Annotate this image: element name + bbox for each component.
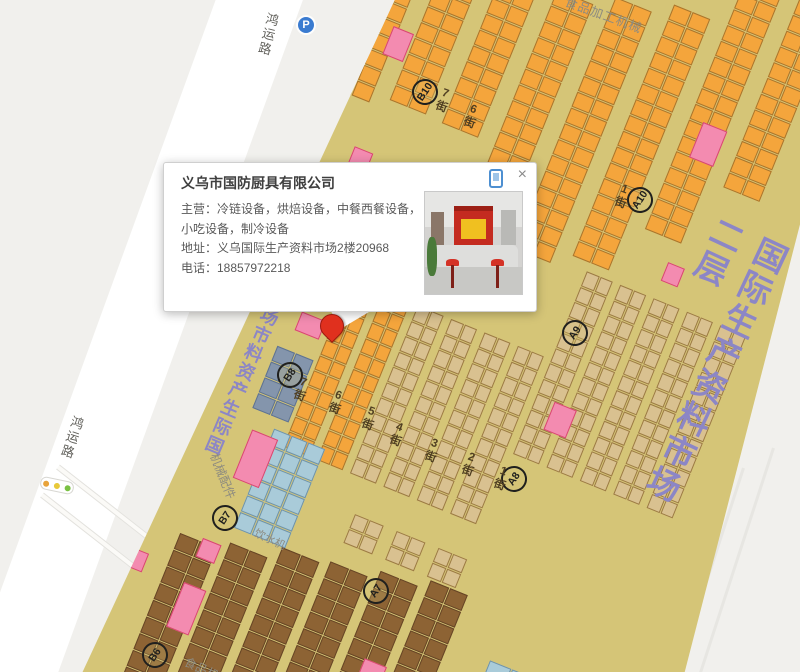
stall-cell (483, 660, 511, 672)
stall-cell (359, 10, 383, 32)
store-photo[interactable] (424, 191, 523, 295)
parking-icon[interactable]: P (298, 17, 314, 33)
popup-address-line: 地址：义乌国际生产资料市场2楼20968 (181, 239, 427, 259)
stall-cell (352, 26, 376, 48)
photo-detail (501, 210, 517, 245)
mobile-phone-icon[interactable] (489, 169, 503, 188)
info-popup: 义乌市国防厨具有限公司 × 主营：冷链设备，烘焙设备，中餐西餐设备，小吃设备，制… (163, 162, 537, 312)
popup-phone-line: 电话：18857972218 (181, 259, 427, 279)
close-icon[interactable]: × (518, 167, 527, 183)
map-canvas[interactable]: { "popup": { "title": "义乌市国防厨具有限公司", "cl… (0, 0, 800, 672)
stall-block (343, 514, 383, 554)
popup-title: 义乌市国防厨具有限公司 (181, 173, 335, 193)
photo-detail (427, 237, 437, 276)
photo-detail (425, 267, 522, 294)
stall-cell (346, 42, 370, 64)
stall-block (385, 531, 425, 571)
photo-detail (496, 265, 499, 287)
stall-block (475, 660, 555, 672)
popup-business-line: 主营：冷链设备，烘焙设备，中餐西餐设备，小吃设备，制冷设备 (181, 200, 427, 239)
popup-body: 主营：冷链设备，烘焙设备，中餐西餐设备，小吃设备，制冷设备 地址：义乌国际生产资… (181, 200, 427, 278)
stall-cell (365, 0, 389, 16)
photo-detail (461, 219, 486, 239)
photo-detail (451, 265, 454, 287)
